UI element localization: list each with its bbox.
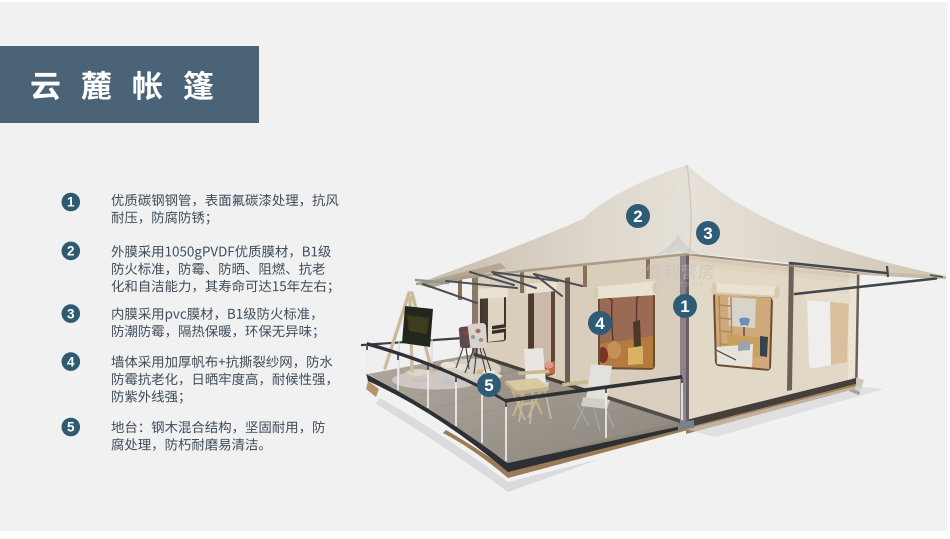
svg-text:4: 4 (67, 354, 75, 369)
svg-text:5: 5 (484, 376, 493, 395)
svg-text:YULI TENT: YULI TENT (653, 280, 705, 289)
svg-text:2: 2 (633, 207, 642, 226)
svg-text:4: 4 (595, 314, 605, 333)
svg-text:3: 3 (67, 306, 75, 321)
svg-text:1: 1 (67, 195, 75, 210)
svg-text:1: 1 (680, 297, 689, 316)
svg-text:5: 5 (67, 420, 75, 435)
svg-text:2: 2 (67, 244, 75, 259)
svg-text:3: 3 (703, 224, 712, 243)
